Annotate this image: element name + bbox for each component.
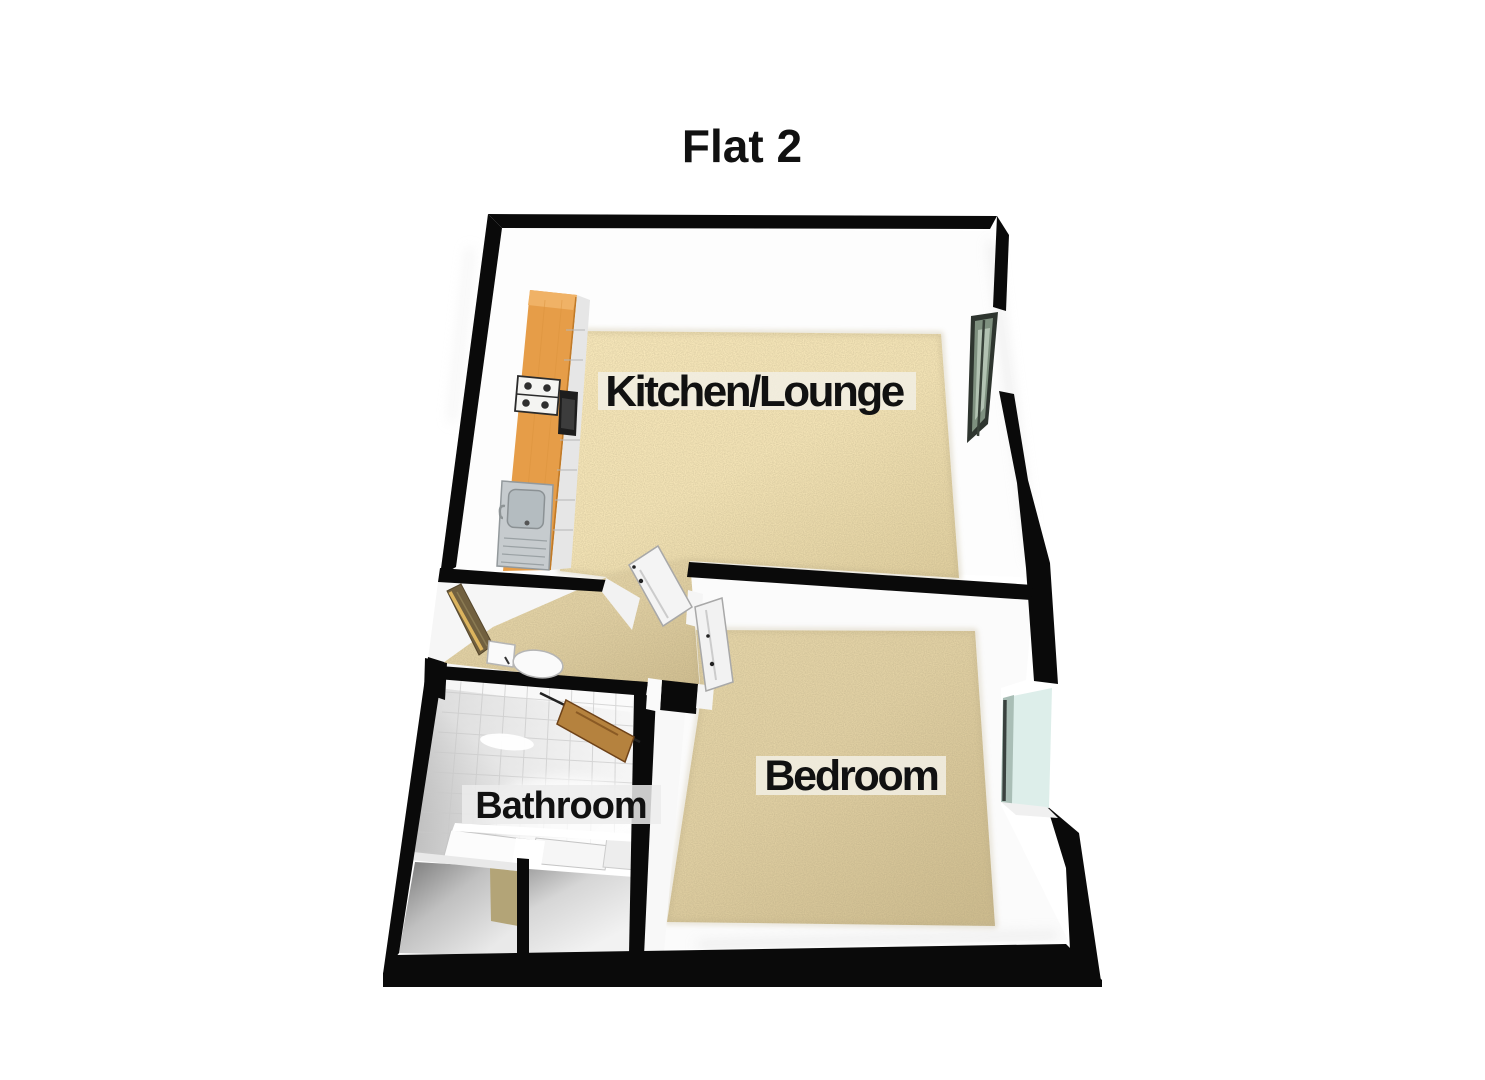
svg-text:Bathroom: Bathroom (475, 785, 646, 827)
svg-text:Kitchen/Lounge: Kitchen/Lounge (605, 367, 903, 416)
svg-text:Flat 2: Flat 2 (682, 120, 802, 172)
svg-text:Bedroom: Bedroom (764, 752, 937, 800)
